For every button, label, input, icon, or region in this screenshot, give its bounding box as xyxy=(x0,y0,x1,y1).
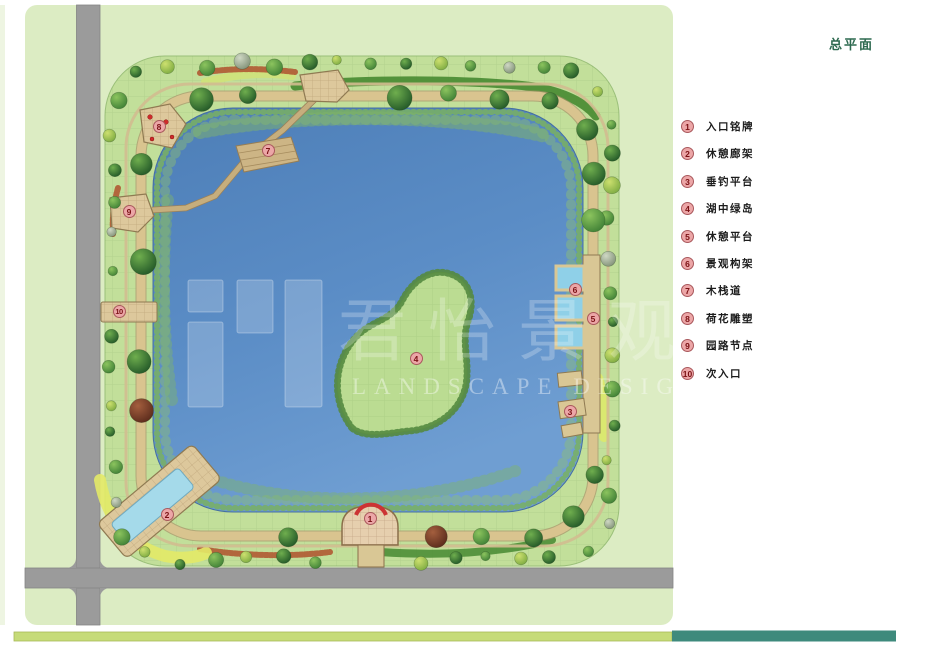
legend-item: 1入口铭牌 xyxy=(681,120,754,133)
tree-icon xyxy=(450,552,462,564)
tree-icon xyxy=(160,60,174,74)
plan-marker-4: 4 xyxy=(410,352,423,365)
legend-item-number: 3 xyxy=(681,175,694,188)
legend-item: 4湖中绿岛 xyxy=(681,202,754,215)
tree-icon xyxy=(387,85,412,110)
tree-icon xyxy=(538,61,550,73)
site-plan xyxy=(0,0,926,655)
sculpture-dot xyxy=(170,135,174,139)
plan-marker-3: 3 xyxy=(564,405,577,418)
tree-icon xyxy=(465,60,476,71)
plan-marker-7: 7 xyxy=(262,144,275,157)
legend-item-number: 2 xyxy=(681,147,694,160)
logo-bar xyxy=(188,280,223,312)
tree-icon xyxy=(400,58,411,69)
horizontal-road xyxy=(25,568,673,588)
tree-icon xyxy=(139,547,150,558)
plan-marker-9: 9 xyxy=(123,205,136,218)
tree-icon xyxy=(105,427,115,437)
tree-icon xyxy=(102,360,115,373)
legend-item-number: 7 xyxy=(681,284,694,297)
logo-bar xyxy=(237,280,273,333)
legend-item-number: 1 xyxy=(681,120,694,133)
plan-marker-10: 10 xyxy=(113,305,126,318)
legend-item: 7木栈道 xyxy=(681,284,754,297)
tree-icon xyxy=(602,456,611,465)
tree-icon xyxy=(605,348,620,363)
tree-icon xyxy=(108,164,121,177)
legend-item-number: 8 xyxy=(681,312,694,325)
legend-item-number: 4 xyxy=(681,202,694,215)
tree-icon xyxy=(302,54,318,70)
bench-deck xyxy=(557,371,582,387)
tree-icon xyxy=(542,93,559,110)
tree-icon xyxy=(130,399,154,423)
tree-icon xyxy=(582,209,605,232)
tree-icon xyxy=(190,88,214,112)
legend-item-number: 5 xyxy=(681,230,694,243)
tree-icon xyxy=(515,552,528,565)
tree-icon xyxy=(542,551,555,564)
tree-icon xyxy=(109,460,123,474)
tree-icon xyxy=(130,249,156,275)
tree-icon xyxy=(490,90,509,109)
plan-marker-6: 6 xyxy=(569,283,582,296)
legend-item: 10次入口 xyxy=(681,367,754,380)
secondary-entrance xyxy=(101,302,157,322)
legend-item-label: 垂钓平台 xyxy=(706,174,754,189)
legend: 1入口铭牌2休憩廊架3垂钓平台4湖中绿岛5休憩平台6景观构架7木栈道8荷花雕塑9… xyxy=(681,120,754,394)
tree-icon xyxy=(577,119,599,141)
tree-icon xyxy=(440,85,456,101)
tree-icon xyxy=(473,528,490,545)
tree-icon xyxy=(563,63,579,79)
footer-bar-teal xyxy=(672,631,896,642)
tree-icon xyxy=(365,58,377,70)
tree-icon xyxy=(279,528,298,547)
legend-item-number: 6 xyxy=(681,257,694,270)
tree-icon xyxy=(175,559,185,569)
sculpture-dot xyxy=(148,115,153,120)
logo-bar xyxy=(285,280,322,407)
tree-icon xyxy=(107,227,117,237)
tree-icon xyxy=(111,497,121,507)
tree-icon xyxy=(601,488,617,504)
legend-item: 8荷花雕塑 xyxy=(681,312,754,325)
legend-item-label: 景观构架 xyxy=(706,256,754,271)
tree-icon xyxy=(239,87,256,104)
tree-icon xyxy=(504,62,516,74)
plan-marker-8: 8 xyxy=(153,120,166,133)
tree-icon xyxy=(582,162,605,185)
legend-item-label: 湖中绿岛 xyxy=(706,201,754,216)
landscape-plan-page: 君怡景观 LANDSCAPE DESIGN 12345678910 总平面 1入… xyxy=(0,0,926,655)
tree-icon xyxy=(276,549,291,564)
tree-icon xyxy=(604,287,617,300)
tree-icon xyxy=(130,66,142,78)
tree-icon xyxy=(103,129,116,142)
footer-bar-green xyxy=(14,632,672,641)
tree-icon xyxy=(586,466,604,484)
tree-icon xyxy=(114,529,131,546)
tree-icon xyxy=(425,526,447,548)
tree-icon xyxy=(604,145,620,161)
tree-icon xyxy=(608,317,618,327)
legend-item-label: 休憩平台 xyxy=(706,229,754,244)
legend-item-label: 入口铭牌 xyxy=(706,119,754,134)
tree-icon xyxy=(434,57,447,70)
tree-icon xyxy=(108,266,118,276)
vertical-road xyxy=(77,5,101,625)
tree-icon xyxy=(414,556,428,570)
plan-marker-1: 1 xyxy=(364,512,377,525)
tree-icon xyxy=(583,546,594,557)
tree-icon xyxy=(603,177,620,194)
lakeside-deck xyxy=(583,255,600,433)
tree-icon xyxy=(209,552,224,567)
tree-icon xyxy=(481,551,490,560)
tree-icon xyxy=(240,551,252,563)
water-platform xyxy=(556,296,584,320)
legend-item: 5休憩平台 xyxy=(681,230,754,243)
tree-icon xyxy=(310,557,322,569)
tree-icon xyxy=(199,60,215,76)
tree-icon xyxy=(593,87,603,97)
tree-icon xyxy=(604,381,620,397)
tree-icon xyxy=(607,120,616,129)
page-title: 总平面 xyxy=(829,34,874,53)
legend-item-label: 木栈道 xyxy=(706,283,742,298)
tree-icon xyxy=(106,401,116,411)
tree-icon xyxy=(332,55,341,64)
tree-icon xyxy=(105,329,119,343)
entrance-walk xyxy=(358,545,384,567)
legend-item-number: 10 xyxy=(681,367,694,380)
logo-bar xyxy=(188,322,223,407)
legend-item-number: 9 xyxy=(681,339,694,352)
tree-icon xyxy=(109,196,121,208)
legend-item-label: 园路节点 xyxy=(706,338,754,353)
legend-item: 9园路节点 xyxy=(681,339,754,352)
legend-item-label: 次入口 xyxy=(706,366,742,381)
tree-icon xyxy=(601,251,616,266)
tree-icon xyxy=(131,153,153,175)
legend-item-label: 荷花雕塑 xyxy=(706,311,754,326)
legend-item: 6景观构架 xyxy=(681,257,754,270)
plan-marker-5: 5 xyxy=(587,312,600,325)
legend-item: 2休憩廊架 xyxy=(681,147,754,160)
tree-icon xyxy=(234,53,250,69)
legend-item-label: 休憩廊架 xyxy=(706,146,754,161)
sculpture-dot xyxy=(150,137,154,141)
page-edge-strip xyxy=(0,5,5,625)
plan-marker-2: 2 xyxy=(161,508,174,521)
tree-icon xyxy=(111,92,128,109)
water-platform xyxy=(556,326,584,348)
tree-icon xyxy=(525,529,543,547)
tree-icon xyxy=(604,518,614,528)
tree-icon xyxy=(563,506,585,528)
tree-icon xyxy=(609,420,620,431)
legend-item: 3垂钓平台 xyxy=(681,175,754,188)
tree-icon xyxy=(127,350,151,374)
tree-icon xyxy=(266,59,283,76)
